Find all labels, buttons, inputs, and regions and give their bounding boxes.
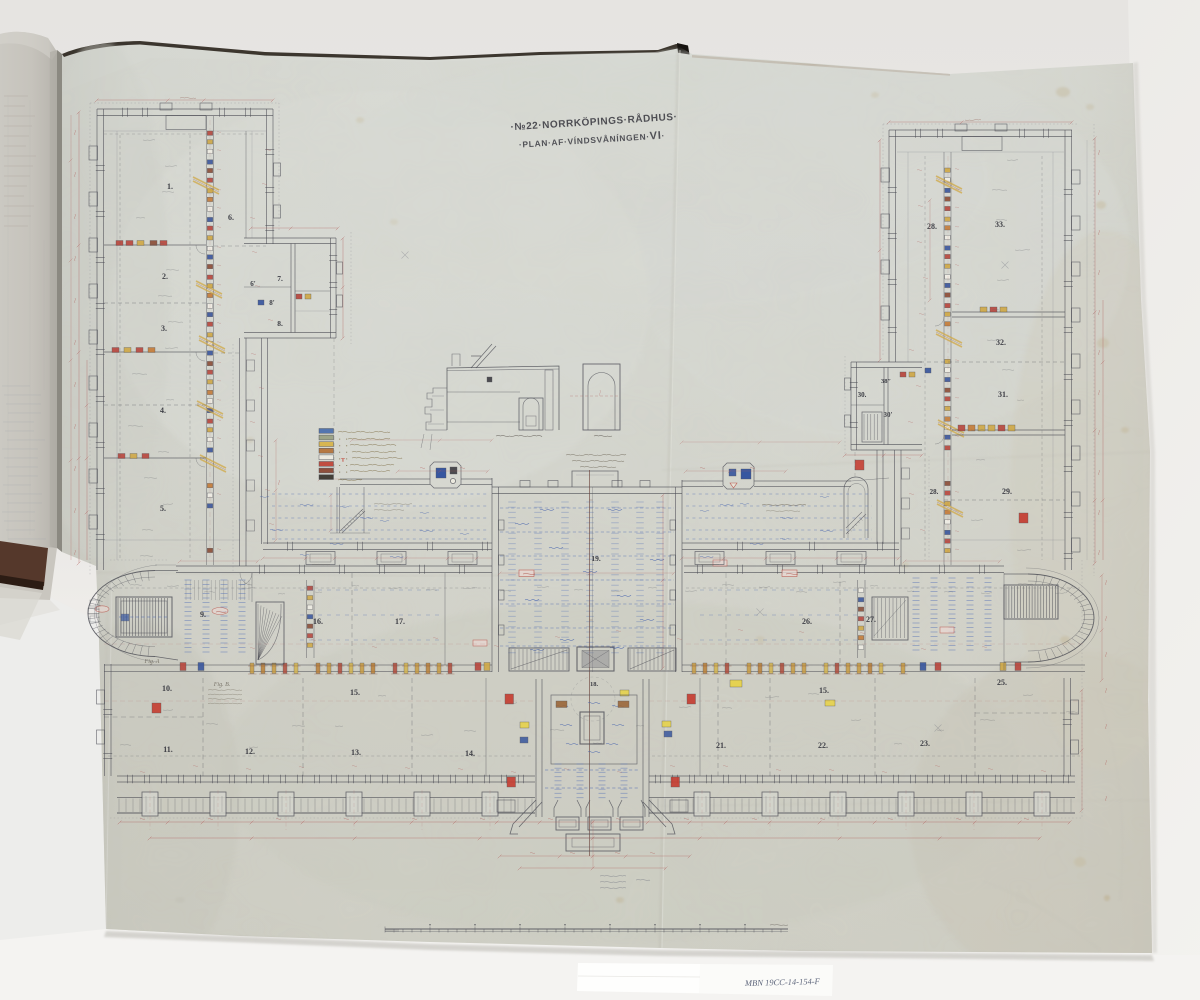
svg-text:MBN 19CC-14-154-F: MBN 19CC-14-154-F: [744, 976, 821, 988]
